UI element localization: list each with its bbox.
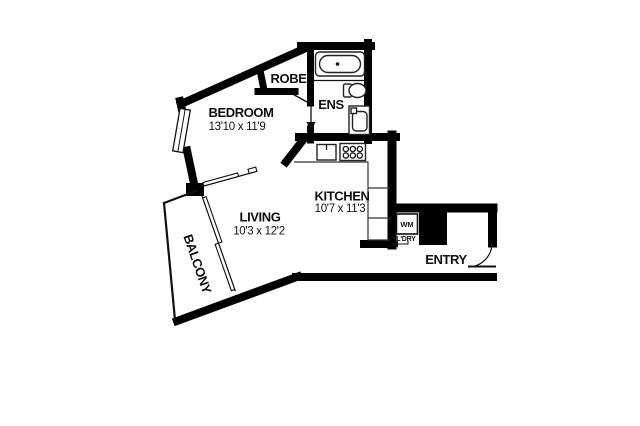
robe-label: ROBE xyxy=(271,71,308,86)
bedroom-dimensions: 13'10 x 11'9 xyxy=(209,121,266,133)
balcony-label: BALCONY xyxy=(180,232,214,296)
laundry-label: L'DRY xyxy=(396,236,416,243)
bedroom-window xyxy=(173,108,191,152)
living-label: LIVING xyxy=(240,210,281,225)
kitchen-sink xyxy=(317,145,336,161)
bedroom-label: BEDROOM xyxy=(208,105,273,120)
ens-vanity xyxy=(349,106,370,135)
ens-label: ENS xyxy=(318,97,344,112)
entry-door xyxy=(468,243,496,267)
ens-toilet xyxy=(344,84,367,98)
ens-bathtub xyxy=(314,52,365,81)
entry-wall-block xyxy=(419,212,447,245)
washing-machine-label: WM xyxy=(400,220,413,229)
kitchen-stove xyxy=(340,144,366,161)
entry-label: ENTRY xyxy=(425,252,467,267)
kitchen-dimensions: 10'7 x 11'3 xyxy=(315,203,366,215)
kitchen-label: KITCHEN xyxy=(315,189,370,204)
washing-machine: WM xyxy=(397,214,418,234)
robe-door xyxy=(294,95,308,103)
floor-plan: WM L'DRY ROBE BEDROOM 13'10 x 11'9 ENS K… xyxy=(0,0,640,426)
bedroom-sliding-door xyxy=(199,167,257,187)
living-dimensions: 10'3 x 12'2 xyxy=(233,226,285,238)
floor-plan-drawing: WM L'DRY ROBE BEDROOM 13'10 x 11'9 ENS K… xyxy=(0,0,640,426)
exterior-walls xyxy=(177,43,493,321)
